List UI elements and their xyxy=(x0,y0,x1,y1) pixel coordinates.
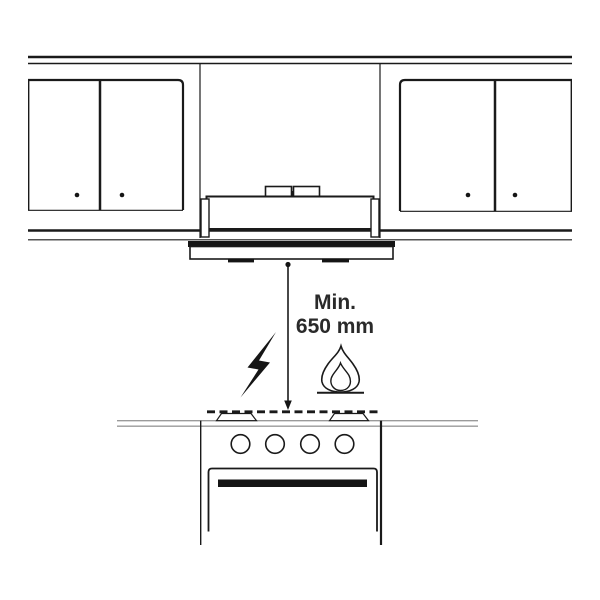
hood-visor xyxy=(188,241,395,262)
oven-door-outline xyxy=(209,469,378,532)
clearance-label-line2: 650 mm xyxy=(296,315,374,338)
door-knob xyxy=(466,193,471,198)
clearance-label-line1: Min. xyxy=(314,291,356,314)
right-wall-cabinet xyxy=(400,80,572,211)
left-wall-cabinet xyxy=(28,80,183,210)
visor-panel xyxy=(190,247,393,260)
distance-arrow-head-icon xyxy=(284,401,292,411)
oven-handle xyxy=(218,480,367,488)
door-knob xyxy=(513,193,518,198)
clearance-label: Min. 650 mm xyxy=(296,291,374,338)
control-knob xyxy=(301,435,320,454)
hood-body xyxy=(207,197,374,230)
burner-right xyxy=(330,414,369,421)
door-knob xyxy=(120,193,125,198)
lightning-bolt-icon xyxy=(241,332,277,398)
countertop-lines xyxy=(117,421,478,427)
left-cabinet-outline xyxy=(28,80,183,210)
control-knob xyxy=(231,435,250,454)
control-knob xyxy=(335,435,354,454)
distance-arrow-top-dot xyxy=(285,262,290,267)
cabinet-bottom-rails xyxy=(28,231,572,240)
flame-outer xyxy=(322,346,360,392)
visor-tab xyxy=(322,259,349,263)
visor-tab xyxy=(228,259,254,263)
hood-mount-tab xyxy=(266,187,292,197)
hood-side-bracket-right xyxy=(371,199,379,237)
installation-diagram: Min. 650 mm xyxy=(0,0,600,600)
cooker-hood xyxy=(201,187,379,238)
hood-mount-tab xyxy=(294,187,320,197)
diagram-canvas: Min. 650 mm xyxy=(0,0,600,600)
control-knob xyxy=(266,435,285,454)
cooker xyxy=(201,421,381,545)
ceiling-lines xyxy=(28,57,572,64)
door-knob xyxy=(75,193,80,198)
hood-side-bracket-left xyxy=(201,199,209,237)
right-cabinet-outline xyxy=(400,80,572,211)
burner-left xyxy=(217,414,257,421)
flame-icon xyxy=(317,346,364,393)
distance-arrow xyxy=(284,262,292,410)
